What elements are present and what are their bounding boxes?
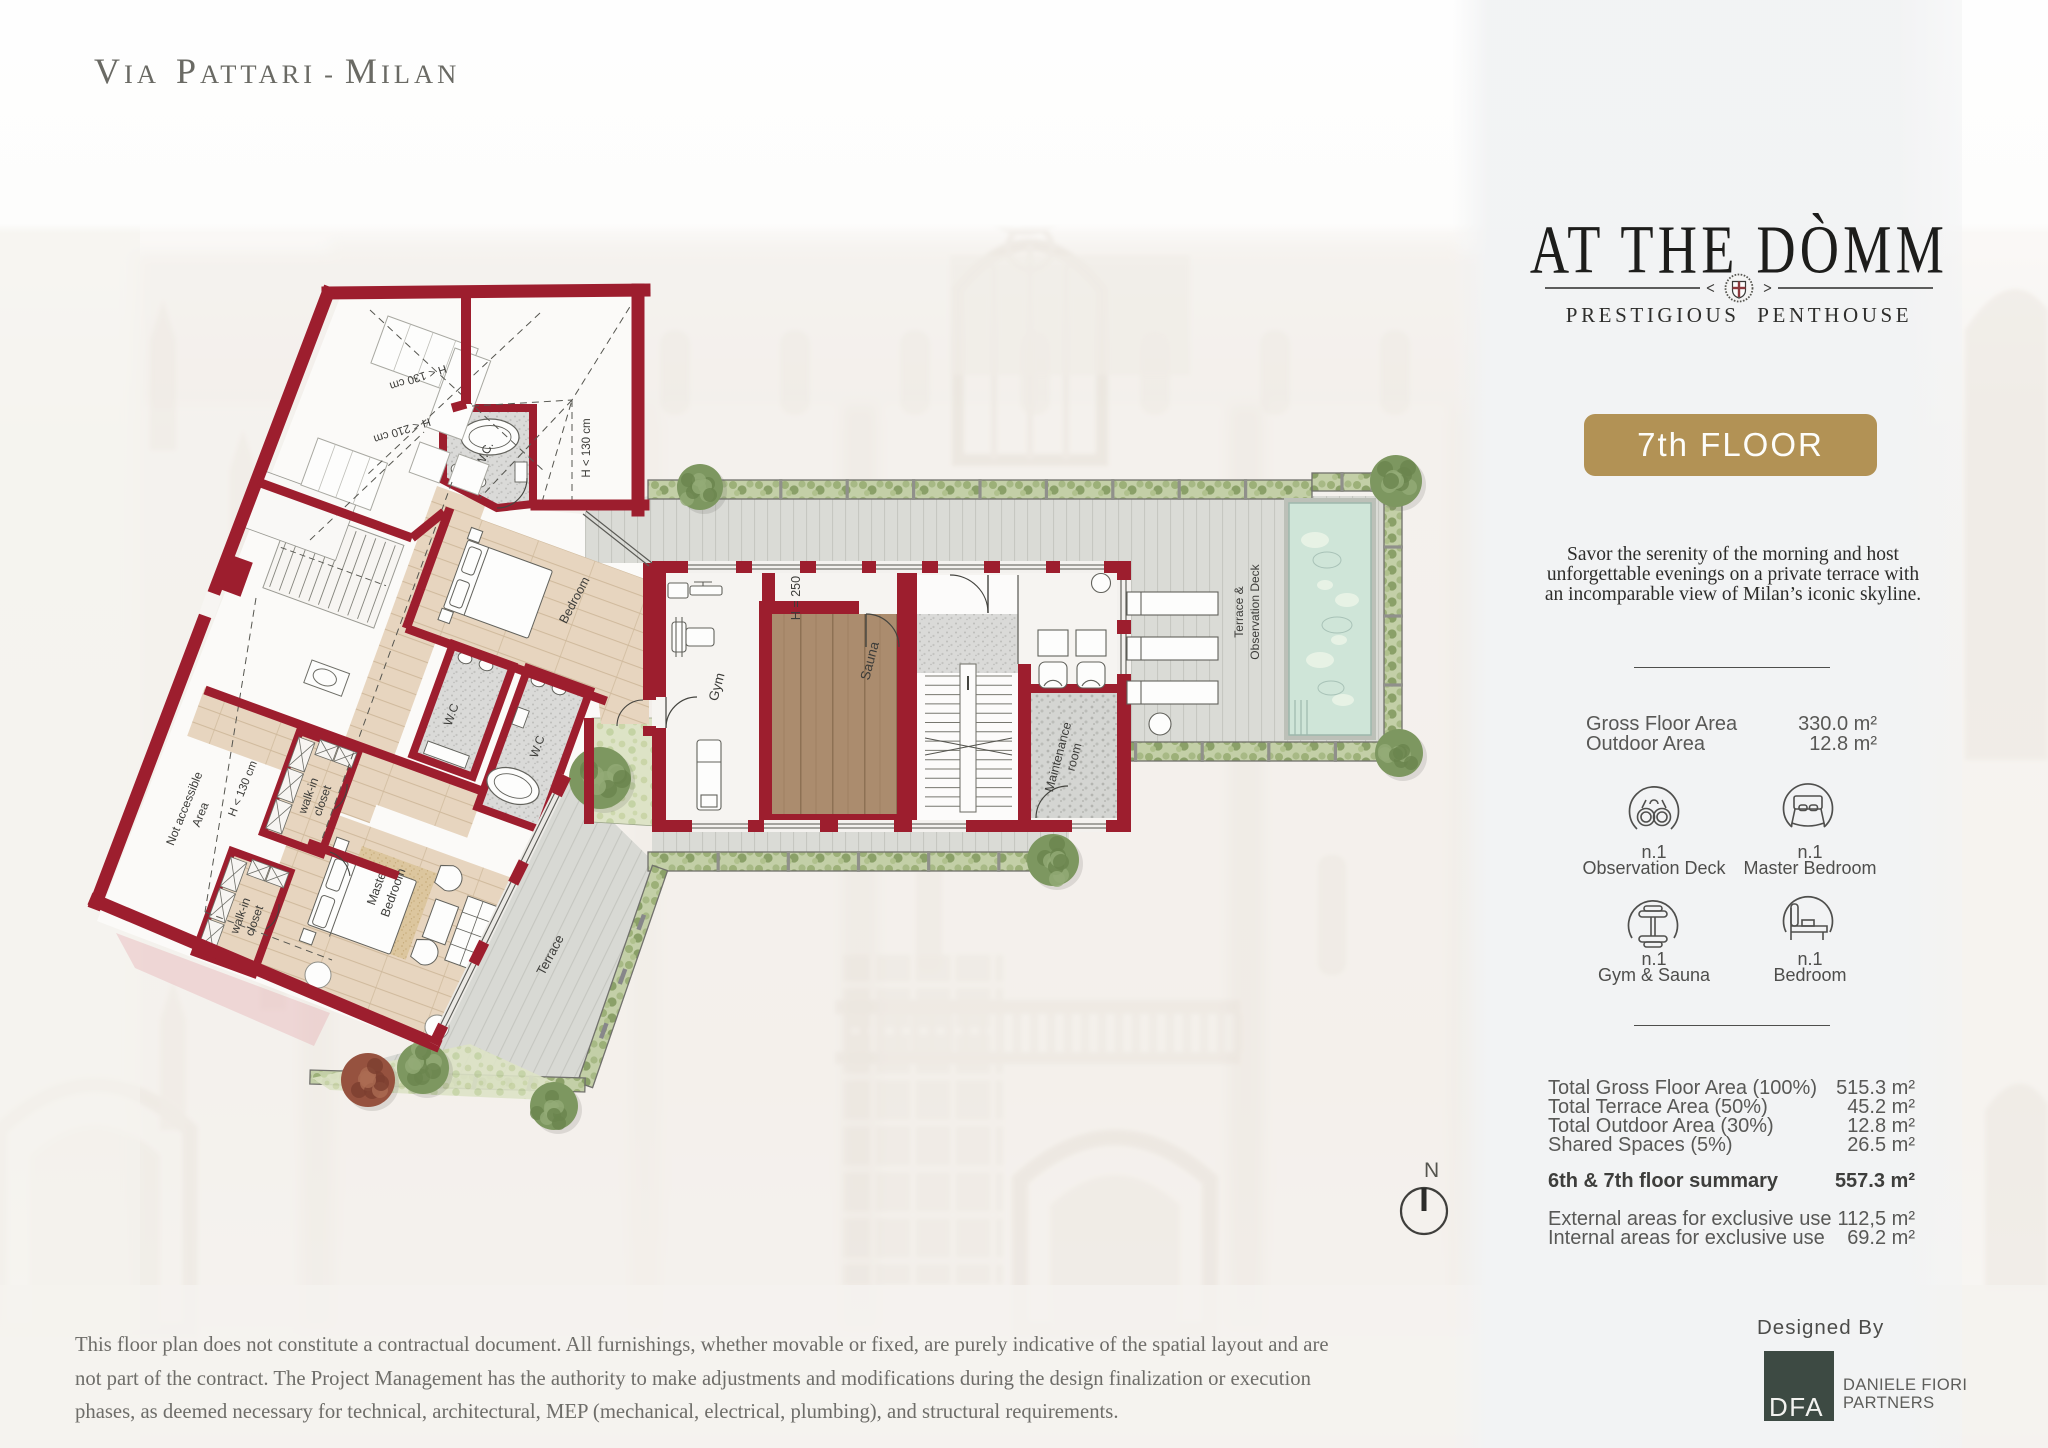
svg-text:H = 250: H = 250 (789, 576, 803, 620)
svg-text:H < 130 cm: H < 130 cm (581, 418, 593, 477)
svg-text:Terrace &: Terrace & (1232, 586, 1246, 637)
svg-text:N: N (1424, 1159, 1439, 1182)
svg-text:Observation Deck: Observation Deck (1248, 563, 1262, 659)
